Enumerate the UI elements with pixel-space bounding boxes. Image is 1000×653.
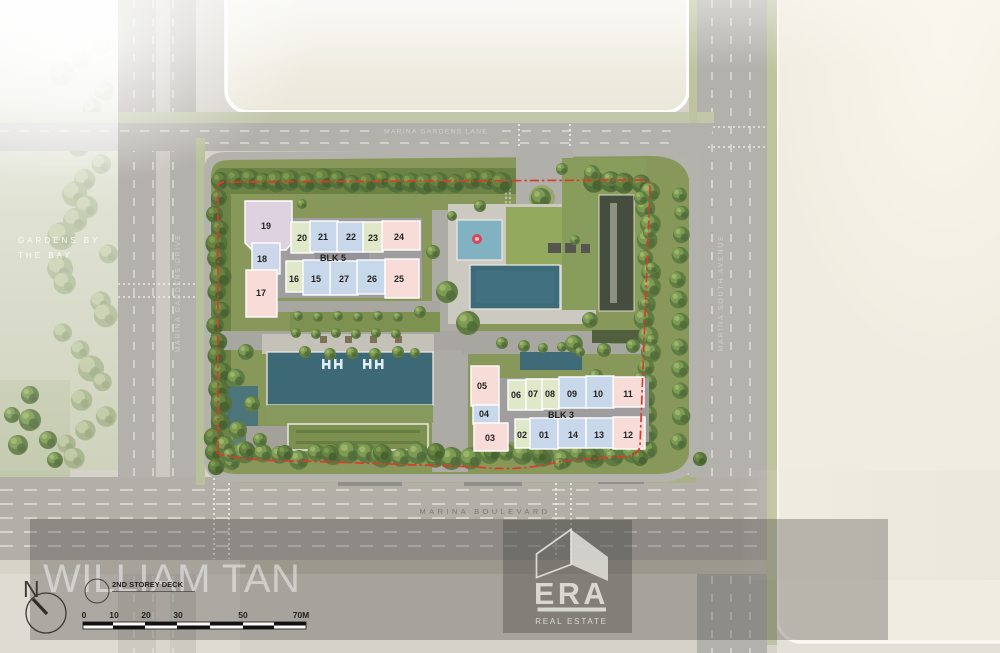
svg-text:REAL ESTATE: REAL ESTATE (535, 617, 608, 626)
svg-text:THE BAY: THE BAY (18, 251, 73, 260)
svg-text:MARINA SOUTH AVENUE: MARINA SOUTH AVENUE (718, 234, 725, 351)
svg-text:20: 20 (141, 610, 151, 620)
svg-text:07: 07 (528, 389, 538, 399)
svg-text:04: 04 (479, 409, 489, 419)
svg-text:01: 01 (539, 430, 549, 440)
svg-text:11: 11 (623, 389, 633, 399)
svg-text:70M: 70M (293, 610, 310, 620)
svg-text:12: 12 (623, 430, 633, 440)
svg-text:N: N (23, 576, 40, 602)
svg-text:02: 02 (517, 430, 527, 440)
svg-text:WILLIAM TAN: WILLIAM TAN (43, 557, 300, 601)
svg-text:ERA: ERA (534, 577, 609, 611)
svg-text:MARINA GARDENS DRIVE: MARINA GARDENS DRIVE (175, 234, 182, 353)
svg-text:30: 30 (173, 610, 183, 620)
svg-text:10: 10 (593, 389, 603, 399)
svg-text:08: 08 (545, 389, 555, 399)
svg-text:MARINA GARDENS LANE: MARINA GARDENS LANE (384, 129, 488, 136)
svg-text:03: 03 (485, 433, 495, 443)
svg-text:10: 10 (109, 610, 119, 620)
svg-text:50: 50 (238, 610, 248, 620)
svg-text:06: 06 (511, 390, 521, 400)
svg-text:14: 14 (568, 430, 578, 440)
svg-text:13: 13 (594, 430, 604, 440)
svg-text:2ND STOREY DECK: 2ND STOREY DECK (112, 580, 184, 589)
svg-text:BLK 3: BLK 3 (548, 410, 574, 420)
svg-text:09: 09 (567, 389, 577, 399)
svg-text:MARINA BOULEVARD: MARINA BOULEVARD (420, 507, 551, 516)
svg-text:GARDENS BY: GARDENS BY (18, 236, 100, 245)
svg-text:05: 05 (477, 381, 487, 391)
svg-text:0: 0 (82, 610, 87, 620)
